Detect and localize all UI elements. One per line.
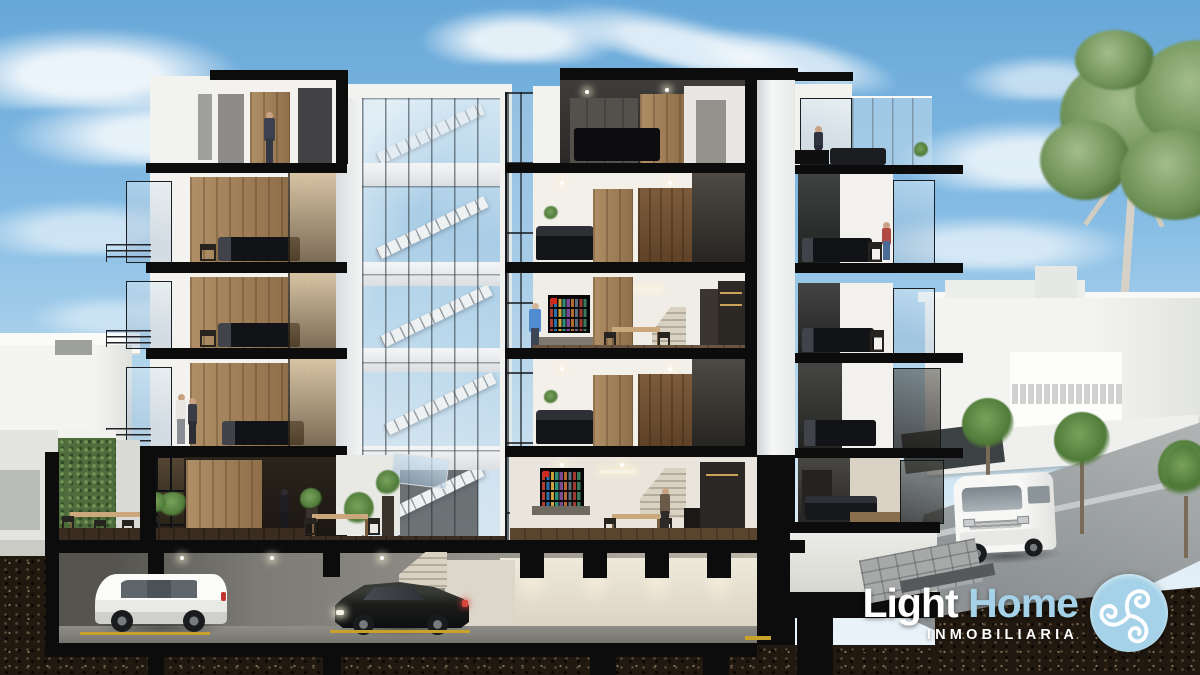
pendant-light	[600, 470, 636, 473]
chair	[870, 330, 884, 352]
cut-wall	[336, 70, 348, 164]
plant-pot	[382, 496, 394, 536]
balcony-glass	[893, 288, 935, 359]
floor-slab	[795, 353, 963, 363]
balcony-railing	[106, 244, 151, 262]
sedan-headlight-glow	[336, 610, 344, 615]
tree-canopy	[1075, 30, 1155, 90]
balcony-railing	[106, 330, 151, 347]
car-wheel	[111, 610, 133, 632]
sofa	[536, 226, 594, 260]
logo-brand-space	[958, 580, 968, 626]
black-bed	[574, 128, 660, 161]
interior-door	[700, 289, 718, 353]
facade-pier	[757, 80, 795, 458]
floor-slab	[795, 522, 940, 533]
kitchen-shelf-light	[720, 292, 742, 294]
garage-ceiling-light	[180, 556, 184, 560]
logo-lockup: Light Home INMOBILIARIA	[862, 574, 1168, 652]
parking-line	[80, 632, 210, 635]
triskelion-icon	[1097, 581, 1161, 645]
hall-door	[696, 100, 726, 163]
chair	[368, 518, 380, 535]
house-window	[55, 340, 92, 355]
chair	[200, 330, 216, 347]
tv-screen	[540, 468, 584, 508]
tree-trunk	[1184, 496, 1188, 558]
bed	[802, 238, 872, 262]
wood-panel-wall	[593, 189, 633, 262]
tree-canopy	[1040, 120, 1130, 200]
rooftop-sideboard	[795, 150, 829, 164]
cut-wall	[45, 452, 59, 667]
suv-taillight	[221, 592, 226, 601]
floor-slab	[505, 262, 757, 273]
wood-panel-wall	[186, 460, 262, 528]
ceiling-stub-column	[323, 545, 340, 577]
sedan-taillight	[462, 600, 468, 607]
downlight-glow	[514, 578, 550, 608]
floor-slab	[146, 163, 347, 173]
bed	[804, 420, 876, 446]
floor-slab	[795, 165, 963, 174]
ceiling-light	[560, 367, 564, 371]
balcony-glass-dark	[893, 368, 941, 454]
parking-line	[745, 636, 771, 640]
logo-subtitle: INMOBILIARIA	[927, 627, 1078, 643]
van-headlight	[1017, 516, 1029, 525]
ceiling-light	[560, 463, 564, 467]
architectural-render-scene: Light Home INMOBILIARIA	[0, 0, 1200, 675]
van-headlight	[963, 519, 975, 528]
house-balcony-railing	[1010, 384, 1122, 404]
parking-sedan	[335, 578, 469, 634]
potted-plant	[376, 470, 400, 496]
parking-suv	[95, 572, 227, 634]
tinted-glass	[288, 173, 336, 262]
houseplant	[544, 390, 558, 404]
floor-slab	[505, 446, 757, 457]
background-house-right	[1035, 266, 1077, 300]
wood-floor	[850, 512, 900, 522]
deck-joist	[707, 550, 731, 578]
wardrobe	[218, 94, 244, 163]
downlight-glow	[639, 578, 675, 608]
person-suit-man-silhouette	[262, 112, 277, 163]
cut-wall	[140, 450, 156, 550]
ceiling-light	[585, 90, 589, 94]
tinted-glass	[692, 173, 745, 262]
tree-trunk	[1080, 460, 1084, 534]
roadside-bush	[1166, 445, 1200, 495]
tall-wood-door	[638, 188, 692, 262]
tree-canopy	[962, 398, 1014, 450]
van-windshield	[961, 485, 1022, 512]
sideboard	[532, 506, 590, 515]
deck-joist	[645, 550, 669, 578]
deck-joist	[520, 550, 544, 578]
floor-slab	[505, 348, 757, 359]
tv-logo-badge	[543, 471, 549, 477]
mid-wing-top-sliver	[533, 86, 560, 164]
foundation-pier	[590, 650, 616, 675]
logo-brand-text: Light Home	[862, 583, 1078, 624]
ceiling-light	[665, 88, 669, 92]
foundation-pier	[323, 655, 341, 675]
houseplant	[544, 206, 558, 220]
downlight-glow	[701, 578, 737, 608]
wood-panel-wall	[593, 375, 633, 446]
chair	[304, 518, 316, 535]
tinted-glass	[288, 273, 336, 348]
tinted-glass	[692, 359, 745, 446]
foundation-pier	[148, 655, 164, 675]
tree-canopy	[1054, 412, 1110, 468]
floor-slab	[795, 448, 963, 458]
deck-joist	[583, 550, 607, 578]
person-red-woman-silhouette	[880, 222, 893, 260]
balcony-glass-dark	[900, 460, 944, 524]
floor-slab	[134, 446, 347, 457]
person-balcony-couple-silhouette	[186, 398, 199, 444]
sideboard	[538, 337, 594, 345]
tinted-glass	[288, 359, 336, 446]
suv-windows	[117, 580, 201, 598]
rooftop-plant	[914, 142, 928, 158]
chair	[200, 244, 216, 261]
ceiling-light	[560, 181, 564, 185]
logo-badge	[1090, 574, 1168, 652]
rooftop-sofa	[830, 148, 886, 165]
house-door-shadow	[0, 470, 40, 530]
floor-slab	[505, 163, 757, 173]
kitchen-shelf-light	[706, 474, 738, 476]
ceiling-stub-column	[148, 545, 164, 575]
terrace-dining-table	[312, 514, 368, 536]
dark-partition	[298, 88, 332, 163]
garage-ceiling-light	[380, 556, 384, 560]
logo-brand-secondary: Home	[968, 580, 1078, 626]
potted-plant	[300, 488, 322, 510]
parking-line	[330, 630, 470, 633]
floor-slab	[146, 262, 347, 273]
bed	[802, 328, 874, 352]
tall-wood-door	[638, 374, 692, 446]
floor-slab	[146, 348, 347, 359]
foundation-pier	[703, 650, 729, 675]
cut-wall	[745, 70, 757, 455]
floor-slab	[795, 263, 963, 273]
kitchen-shelf-light	[720, 304, 742, 306]
roof-slab	[210, 70, 347, 80]
logo-text: Light Home INMOBILIARIA	[862, 583, 1078, 643]
ceiling-light	[668, 181, 672, 185]
tv-logo-badge	[551, 298, 557, 304]
ceiling-light	[620, 463, 624, 467]
ceiling-light	[668, 367, 672, 371]
garage-ceiling-light	[270, 556, 274, 560]
foundation-pier	[797, 616, 833, 675]
van-side-window	[1027, 486, 1050, 504]
roof-slab	[795, 72, 853, 81]
wood-floor	[510, 528, 757, 540]
tv-screen	[548, 295, 590, 333]
car-wheel	[183, 610, 205, 632]
logo-brand-primary: Light	[862, 580, 957, 626]
balcony-glass	[893, 180, 935, 269]
sofa	[536, 410, 594, 444]
downlight-glow	[577, 578, 613, 608]
roof-slab	[560, 68, 798, 80]
